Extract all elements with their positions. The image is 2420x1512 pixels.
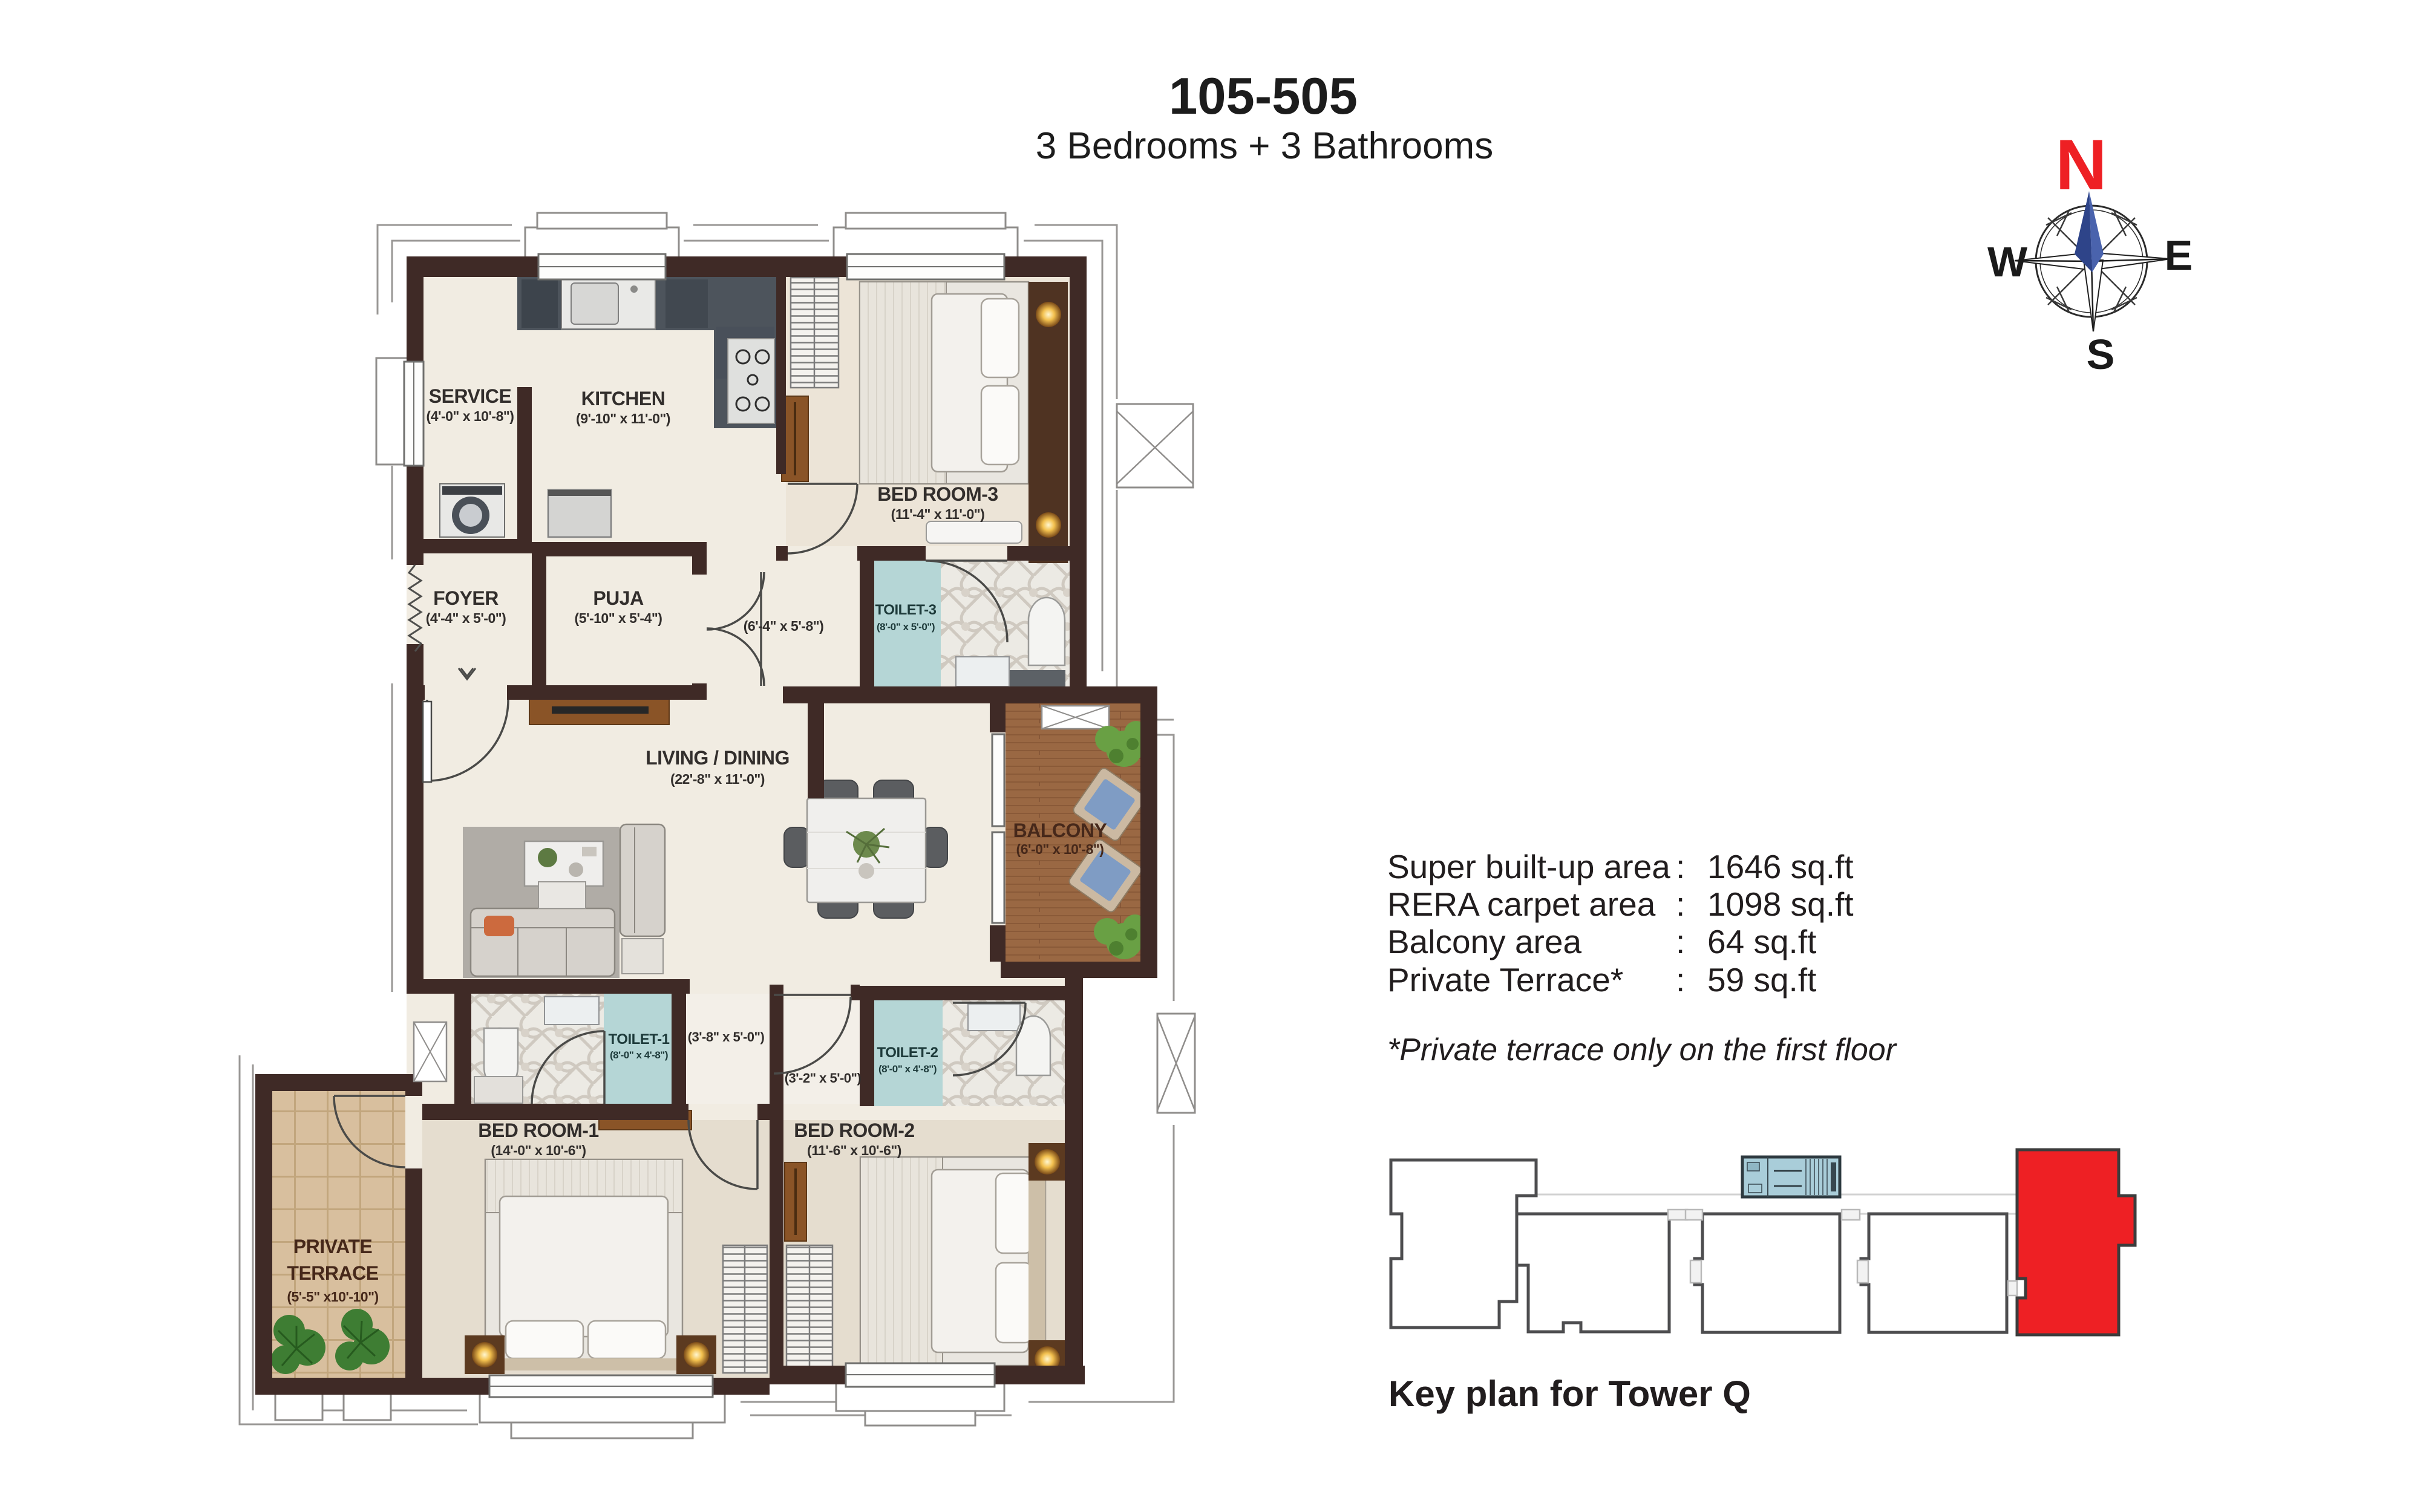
svg-text:Super built-up area: Super built-up area bbox=[1387, 848, 1670, 885]
svg-text:1646 sq.ft: 1646 sq.ft bbox=[1707, 848, 1854, 885]
svg-text:(4'-0" x 10'-8"): (4'-0" x 10'-8") bbox=[427, 408, 514, 424]
svg-text:1098 sq.ft: 1098 sq.ft bbox=[1707, 885, 1854, 923]
svg-text:N: N bbox=[2055, 125, 2107, 205]
svg-text:LIVING / DINING: LIVING / DINING bbox=[646, 747, 790, 769]
svg-text:TERRACE: TERRACE bbox=[287, 1262, 378, 1284]
svg-text:S: S bbox=[2087, 331, 2115, 378]
svg-text:TOILET-3: TOILET-3 bbox=[875, 602, 937, 618]
svg-text:Private Terrace*: Private Terrace* bbox=[1387, 961, 1623, 999]
svg-text:(6'-0" x 10'-8"): (6'-0" x 10'-8") bbox=[1016, 841, 1104, 857]
svg-text:3 Bedrooms + 3 Bathrooms: 3 Bedrooms + 3 Bathrooms bbox=[1036, 125, 1493, 167]
svg-text::: : bbox=[1676, 848, 1685, 885]
svg-text:*Private terrace only on the f: *Private terrace only on the first floor bbox=[1387, 1032, 1898, 1067]
svg-text::: : bbox=[1676, 961, 1685, 999]
svg-text::: : bbox=[1676, 923, 1685, 960]
svg-text:64 sq.ft: 64 sq.ft bbox=[1707, 923, 1816, 960]
svg-text:(8'-0" x 4'-8"): (8'-0" x 4'-8") bbox=[878, 1063, 937, 1075]
svg-text:FOYER: FOYER bbox=[433, 587, 499, 609]
svg-text:PUJA: PUJA bbox=[593, 587, 644, 609]
svg-text:Balcony area: Balcony area bbox=[1387, 923, 1581, 960]
svg-text:(6'-4" x 5'-8"): (6'-4" x 5'-8") bbox=[744, 618, 824, 634]
svg-text:KITCHEN: KITCHEN bbox=[581, 388, 665, 409]
svg-text:(14'-0" x 10'-6"): (14'-0" x 10'-6") bbox=[491, 1142, 586, 1158]
svg-text:Key plan for Tower Q: Key plan for Tower Q bbox=[1388, 1374, 1751, 1414]
svg-text:(11'-6" x 10'-6"): (11'-6" x 10'-6") bbox=[807, 1142, 901, 1158]
svg-text:PRIVATE: PRIVATE bbox=[293, 1236, 373, 1257]
svg-text:SERVICE: SERVICE bbox=[429, 385, 512, 407]
svg-text:TOILET-2: TOILET-2 bbox=[877, 1044, 938, 1061]
svg-text:(11'-4" x 11'-0"): (11'-4" x 11'-0") bbox=[891, 506, 985, 522]
svg-text:BED ROOM-2: BED ROOM-2 bbox=[794, 1119, 914, 1141]
svg-text:BED ROOM-1: BED ROOM-1 bbox=[478, 1119, 598, 1141]
svg-text:105-505: 105-505 bbox=[1169, 68, 1358, 125]
svg-text:(4'-4" x 5'-0"): (4'-4" x 5'-0") bbox=[426, 610, 506, 626]
svg-text:(9'-10" x 11'-0"): (9'-10" x 11'-0") bbox=[576, 411, 670, 426]
svg-text:59 sq.ft: 59 sq.ft bbox=[1707, 961, 1816, 999]
svg-text:(8'-0" x 5'-0"): (8'-0" x 5'-0") bbox=[877, 621, 935, 633]
svg-text:BED ROOM-3: BED ROOM-3 bbox=[877, 483, 998, 505]
svg-text:BALCONY: BALCONY bbox=[1013, 820, 1107, 841]
svg-text:W: W bbox=[1987, 238, 2027, 285]
svg-text:E: E bbox=[2165, 232, 2193, 279]
svg-text:(3'-8" x 5'-0"): (3'-8" x 5'-0") bbox=[688, 1029, 765, 1044]
svg-text:(8'-0" x 4'-8"): (8'-0" x 4'-8") bbox=[610, 1049, 668, 1061]
svg-text:(5'-5" x10'-10"): (5'-5" x10'-10") bbox=[287, 1289, 378, 1305]
svg-text:(22'-8" x 11'-0"): (22'-8" x 11'-0") bbox=[670, 771, 765, 787]
svg-text:(3'-2" x 5'-0"): (3'-2" x 5'-0") bbox=[785, 1070, 862, 1086]
svg-text:(5'-10" x 5'-4"): (5'-10" x 5'-4") bbox=[575, 610, 662, 626]
svg-text::: : bbox=[1676, 885, 1685, 923]
svg-text:TOILET-1: TOILET-1 bbox=[609, 1031, 670, 1048]
svg-text:RERA carpet area: RERA carpet area bbox=[1387, 885, 1656, 923]
